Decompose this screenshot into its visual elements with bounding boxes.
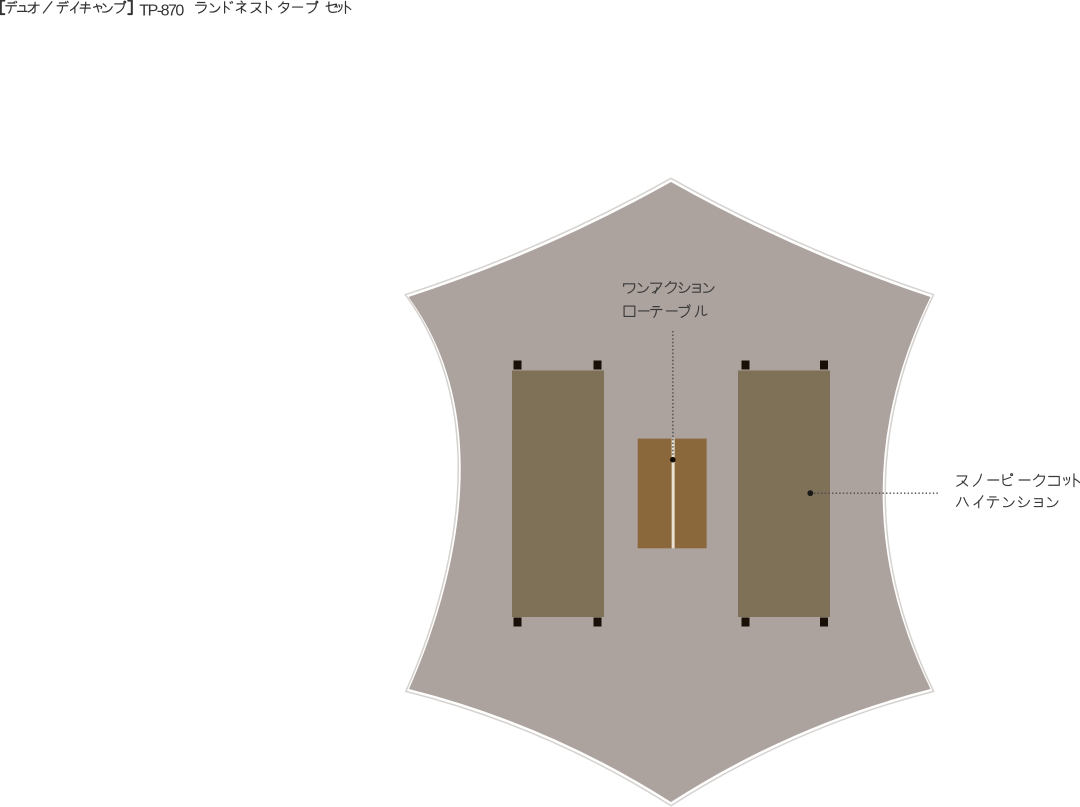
- svg-text:TP-870: TP-870: [139, 3, 184, 20]
